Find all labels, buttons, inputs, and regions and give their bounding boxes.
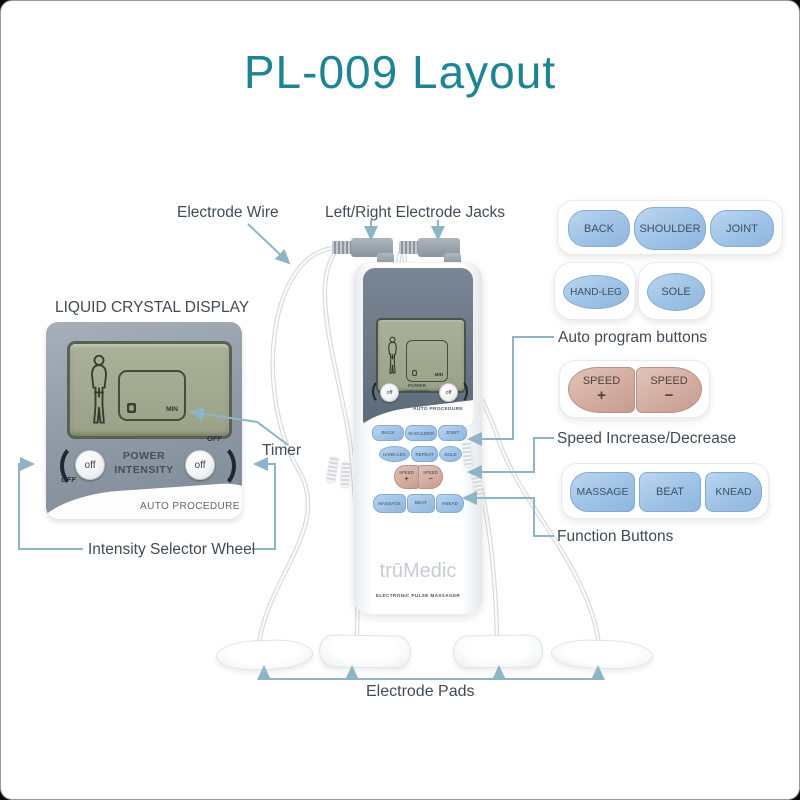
closeup-right-intensity-knob[interactable]: off <box>185 450 215 480</box>
label-function: Function Buttons <box>557 528 673 546</box>
closeup-min-label: MIN <box>166 406 178 413</box>
left-wire-plug-2 <box>340 461 351 488</box>
label-electrode-jacks: Left/Right Electrode Jacks <box>325 204 505 222</box>
brand-logo: trūMedic <box>364 560 472 583</box>
device-tagline: ELECTRONIC PULSE MASSAGER <box>364 593 472 598</box>
closeup-timer-window: MIN <box>118 370 186 421</box>
auto-program-buttons-row1: BACK SHOULDER JOINT <box>557 200 783 255</box>
back-button[interactable]: BACK <box>568 210 630 247</box>
device-button-speed-minus[interactable]: SPEED − <box>418 465 443 489</box>
hand-leg-button[interactable]: HAND-LEG <box>563 275 629 309</box>
device-power-intensity-label: POWER INTENSITY <box>393 384 441 396</box>
device-button-joint[interactable]: JOINT <box>438 425 467 441</box>
label-intensity-wheel: Intensity Selector Wheel <box>88 541 255 559</box>
sole-button-pod: SOLE <box>638 262 712 320</box>
shoulder-button[interactable]: SHOULDER <box>634 207 706 250</box>
lcd-closeup-panel: MIN off OFF POWER INTENSITY off OFF AUTO… <box>46 322 242 519</box>
sole-button[interactable]: SOLE <box>647 273 705 311</box>
closeup-power-intensity-label: POWER INTENSITY <box>104 450 184 477</box>
device-top-panel: MIN off POWER INTENSITY off <box>363 268 473 426</box>
label-speed: Speed Increase/Decrease <box>557 430 736 448</box>
right-jack-wire-connector <box>399 241 419 254</box>
device-button-repeat[interactable]: REPEAT <box>411 446 438 462</box>
device-button-massage[interactable]: MASSAGE <box>373 494 406 513</box>
device-button-sole[interactable]: SOLE <box>439 446 462 462</box>
timer-icon <box>412 370 417 376</box>
pulse-massager-device: MIN off POWER INTENSITY off AUTO PROCEDU… <box>353 262 483 615</box>
label-lcd-title: LIQUID CRYSTAL DISPLAY <box>55 299 249 317</box>
label-auto-program: Auto program buttons <box>558 329 707 347</box>
product-layout-diagram: PL-009 Layout <box>0 0 800 800</box>
electrode-pad-2 <box>319 634 412 669</box>
electrode-pad-1 <box>216 638 314 671</box>
body-figure-icon <box>85 350 113 428</box>
speed-buttons-group: SPEED + SPEED − <box>559 360 710 418</box>
device-button-speed-plus[interactable]: SPEED + <box>394 465 419 489</box>
device-button-beat[interactable]: BEAT <box>407 494 435 513</box>
speed-plus-button[interactable]: SPEED + <box>568 367 635 413</box>
device-min-label: MIN <box>435 372 443 377</box>
closeup-lcd-screen: MIN <box>67 341 232 439</box>
closeup-left-intensity-knob[interactable]: off <box>75 450 105 480</box>
device-button-shoulder[interactable]: SHOULDER <box>405 425 437 441</box>
left-wire-plug <box>326 455 339 482</box>
knead-button[interactable]: KNEAD <box>705 472 762 512</box>
joint-button[interactable]: JOINT <box>710 210 774 247</box>
device-button-knead[interactable]: KNEAD <box>436 494 464 513</box>
page-title: PL-009 Layout <box>1 45 799 99</box>
device-auto-procedure-label: AUTO PROCEDURE <box>402 407 474 412</box>
left-jack-wire-connector <box>332 241 352 254</box>
timer-icon <box>127 403 136 413</box>
device-lcd-timer-window: MIN <box>406 340 448 382</box>
massage-button[interactable]: MASSAGE <box>570 472 635 512</box>
label-electrode-wire: Electrode Wire <box>177 204 279 222</box>
right-off-label: OFF <box>207 434 222 443</box>
label-electrode-pads: Electrode Pads <box>366 683 475 701</box>
device-right-intensity-knob[interactable]: off <box>439 383 458 402</box>
electrode-wire-arrow <box>248 224 289 263</box>
left-off-label: OFF <box>61 475 76 484</box>
closeup-auto-procedure-label: AUTO PROCEDURE <box>140 501 240 512</box>
device-button-back[interactable]: BACK <box>372 425 404 441</box>
hand-leg-button-pod: HAND-LEG <box>554 262 636 320</box>
electrode-pad-3 <box>453 634 544 669</box>
beat-button[interactable]: BEAT <box>639 472 701 512</box>
speed-minus-button[interactable]: SPEED − <box>636 367 702 413</box>
body-figure-icon <box>385 325 400 385</box>
function-buttons-group: MASSAGE BEAT KNEAD <box>561 463 769 519</box>
device-button-hand-leg[interactable]: HAND-LEG <box>379 446 410 462</box>
intensity-right-bracket <box>252 464 275 549</box>
electrode-pad-4 <box>551 638 654 671</box>
label-timer: Timer <box>262 442 301 460</box>
